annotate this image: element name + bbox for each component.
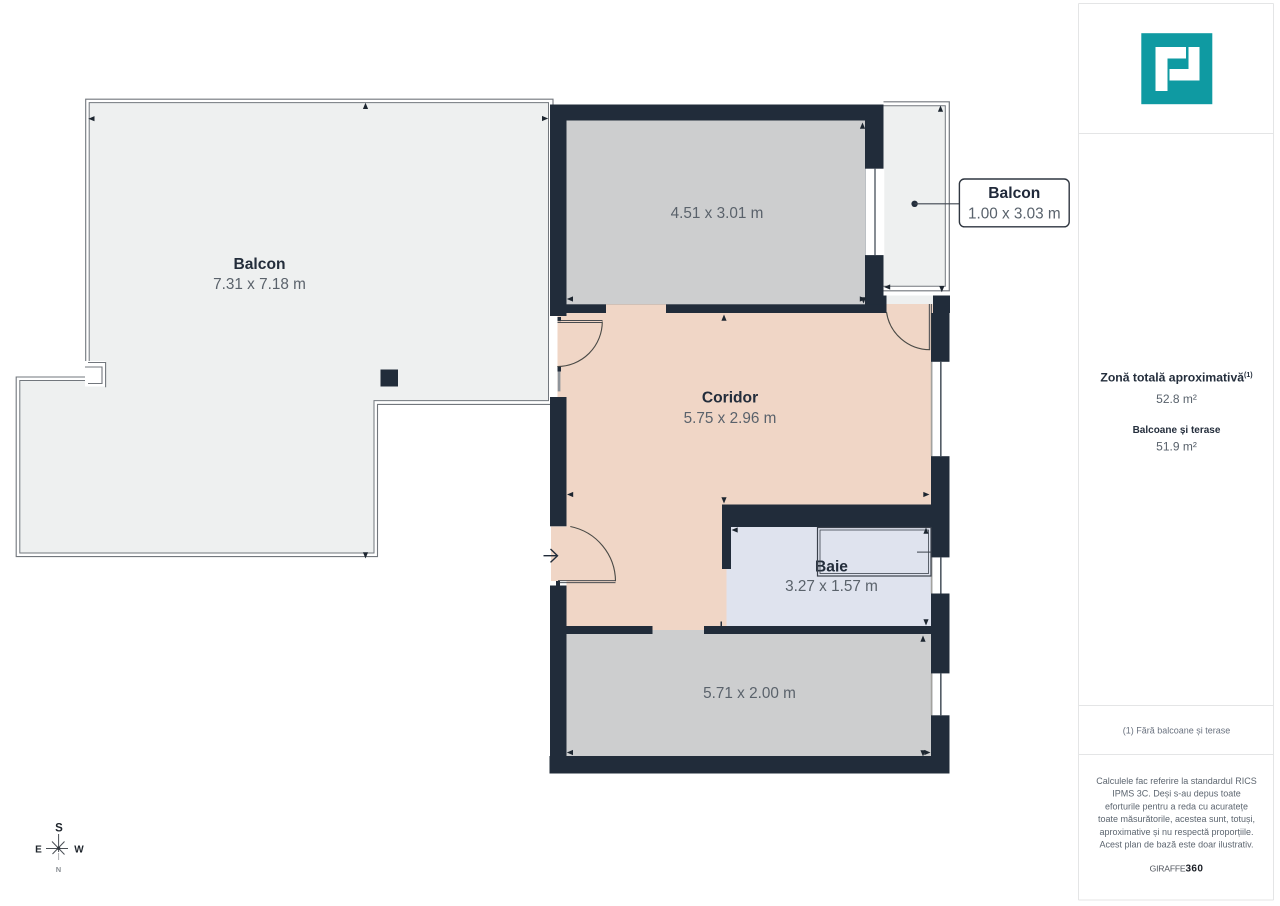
svg-text:toate măsurătorile, acestea su: toate măsurătorile, acestea sunt, totuși… — [1098, 814, 1255, 824]
svg-text:3.27 x 1.57 m: 3.27 x 1.57 m — [785, 578, 878, 595]
svg-text:51.9 m²: 51.9 m² — [1156, 440, 1197, 454]
svg-text:E: E — [35, 844, 42, 855]
svg-text:4.51 x 3.01 m: 4.51 x 3.01 m — [671, 205, 764, 222]
svg-text:aproximative și nu respectă pr: aproximative și nu respectă proporțiile. — [1099, 827, 1253, 837]
svg-text:eforturile pentru a reda cu ac: eforturile pentru a reda cu acuratețe — [1105, 801, 1248, 811]
svg-text:GIRAFFE360: GIRAFFE360 — [1150, 863, 1204, 874]
svg-text:Zonă totală aproximativă(1): Zonă totală aproximativă(1) — [1100, 371, 1252, 385]
svg-text:52.8 m²: 52.8 m² — [1156, 392, 1197, 406]
svg-text:1.00 x 3.03 m: 1.00 x 3.03 m — [968, 206, 1061, 223]
svg-text:Coridor: Coridor — [702, 390, 758, 407]
svg-text:5.71 x 2.00 m: 5.71 x 2.00 m — [703, 685, 796, 702]
svg-text:IPMS 3C. Deși s-au depus toate: IPMS 3C. Deși s-au depus toate — [1112, 789, 1241, 799]
svg-text:(1) Fără balcoane și terase: (1) Fără balcoane și terase — [1123, 726, 1231, 736]
svg-text:S: S — [55, 823, 63, 835]
svg-text:Balcoane și terase: Balcoane și terase — [1133, 425, 1221, 436]
svg-text:7.31 x 7.18 m: 7.31 x 7.18 m — [213, 276, 306, 293]
svg-text:Balcon: Balcon — [988, 185, 1040, 202]
svg-text:Acest plan de bază este doar i: Acest plan de bază este doar ilustrativ. — [1100, 840, 1254, 850]
svg-text:N: N — [56, 865, 61, 874]
svg-text:Calculele fac referire la stan: Calculele fac referire la standardul RIC… — [1096, 776, 1257, 786]
svg-text:Balcon: Balcon — [234, 256, 286, 273]
svg-text:5.75 x 2.96 m: 5.75 x 2.96 m — [684, 410, 777, 427]
svg-text:W: W — [74, 844, 84, 855]
